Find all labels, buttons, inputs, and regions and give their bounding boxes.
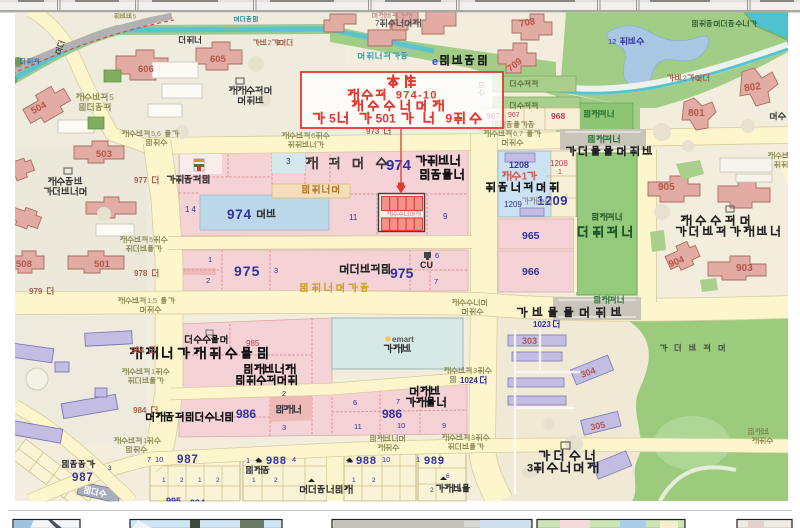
svg-text:3: 3: [471, 434, 475, 442]
svg-text:606: 606: [138, 64, 154, 75]
svg-text:3: 3: [473, 367, 477, 375]
svg-text:3: 3: [108, 465, 112, 472]
svg-text:979: 979: [29, 287, 43, 296]
svg-text:10: 10: [382, 455, 390, 464]
svg-text:967: 967: [508, 112, 520, 119]
svg-text:11: 11: [354, 422, 362, 431]
svg-text:1023: 1023: [533, 320, 551, 329]
svg-text:303: 303: [522, 336, 537, 346]
svg-text:1: 1: [558, 169, 562, 176]
svg-text:2: 2: [274, 477, 278, 484]
svg-text:1209: 1209: [504, 200, 522, 209]
svg-text:3: 3: [282, 423, 286, 432]
svg-text:1: 1: [282, 403, 286, 412]
svg-text:5,6: 5,6: [151, 130, 161, 138]
svg-text:1: 1: [522, 171, 528, 182]
svg-text:9: 9: [443, 212, 448, 221]
svg-text:9: 9: [442, 421, 446, 430]
svg-text:1: 1: [208, 255, 212, 264]
svg-text:2: 2: [180, 477, 184, 484]
svg-text:503: 503: [96, 149, 112, 160]
svg-text:6: 6: [353, 398, 357, 407]
svg-text:986: 986: [236, 407, 256, 421]
svg-text:968: 968: [551, 111, 565, 121]
svg-text:2: 2: [697, 74, 701, 83]
svg-text:1: 1: [143, 437, 147, 445]
svg-text:e: e: [432, 56, 438, 68]
svg-text:2: 2: [430, 487, 434, 494]
svg-text:2: 2: [683, 74, 687, 83]
svg-text:994: 994: [190, 498, 205, 508]
svg-text:508: 508: [16, 259, 32, 270]
svg-text:988: 988: [266, 455, 287, 467]
svg-text:1: 1: [252, 477, 256, 484]
svg-text:6,7: 6,7: [513, 130, 523, 138]
svg-text:6: 6: [435, 251, 439, 260]
svg-text:2: 2: [268, 39, 272, 47]
svg-text:9: 9: [445, 112, 452, 126]
svg-text:974: 974: [227, 207, 252, 222]
svg-text:7: 7: [396, 397, 400, 406]
svg-text:1: 1: [151, 368, 155, 376]
svg-text:10: 10: [155, 455, 163, 464]
svg-text:1: 1: [246, 456, 250, 465]
svg-text:5: 5: [329, 112, 336, 126]
svg-text:501: 501: [94, 259, 111, 270]
svg-text:3: 3: [286, 157, 291, 166]
svg-text:965: 965: [522, 230, 540, 242]
svg-text:989: 989: [424, 455, 445, 467]
svg-text:995: 995: [166, 496, 181, 506]
svg-text:2: 2: [277, 40, 281, 47]
svg-text:5: 5: [109, 93, 114, 102]
svg-text:3: 3: [274, 266, 278, 275]
svg-text:1208: 1208: [550, 159, 568, 168]
svg-text:1: 1: [416, 455, 420, 464]
svg-text:975: 975: [390, 265, 414, 281]
svg-text:1,5: 1,5: [147, 297, 157, 305]
svg-text:501: 501: [376, 112, 397, 126]
svg-text:12: 12: [608, 37, 616, 46]
svg-text:977: 977: [134, 176, 148, 185]
svg-text:987: 987: [72, 472, 94, 484]
svg-text:605: 605: [210, 54, 227, 65]
svg-text:2: 2: [206, 276, 210, 285]
svg-text:2: 2: [372, 477, 376, 484]
svg-text:975: 975: [234, 263, 260, 279]
svg-text:11: 11: [349, 213, 358, 222]
svg-text:905: 905: [658, 182, 675, 193]
svg-text:6: 6: [311, 132, 315, 140]
svg-text:801: 801: [688, 108, 705, 119]
svg-text:14: 14: [185, 205, 198, 214]
svg-text:6: 6: [446, 473, 450, 480]
svg-text:1: 1: [198, 477, 202, 484]
svg-text:CU: CU: [420, 260, 433, 270]
svg-text:5: 5: [149, 236, 153, 244]
svg-text:7: 7: [147, 455, 151, 464]
svg-text:986: 986: [382, 407, 402, 421]
svg-text:1208: 1208: [509, 160, 529, 170]
svg-text:1: 1: [352, 477, 356, 484]
svg-text:3: 3: [527, 463, 533, 475]
svg-text:1209: 1209: [537, 193, 568, 208]
svg-text:1024: 1024: [460, 376, 478, 385]
svg-text:985: 985: [246, 339, 260, 348]
svg-text:emart: emart: [392, 335, 414, 344]
svg-text:978: 978: [134, 269, 148, 278]
svg-text:984: 984: [133, 406, 147, 415]
svg-text:2: 2: [282, 389, 286, 398]
svg-text:1: 1: [162, 477, 166, 484]
svg-text:988: 988: [356, 455, 377, 467]
svg-text:7: 7: [434, 277, 438, 286]
svg-text:966: 966: [522, 266, 540, 278]
svg-text:987: 987: [177, 454, 199, 466]
svg-text:2: 2: [216, 477, 220, 484]
svg-text:10: 10: [397, 421, 405, 430]
svg-text:7: 7: [375, 19, 380, 28]
svg-text:4: 4: [292, 455, 296, 464]
svg-text:974: 974: [386, 157, 412, 174]
svg-text:903: 903: [736, 263, 753, 274]
svg-text:984: 984: [131, 346, 145, 355]
